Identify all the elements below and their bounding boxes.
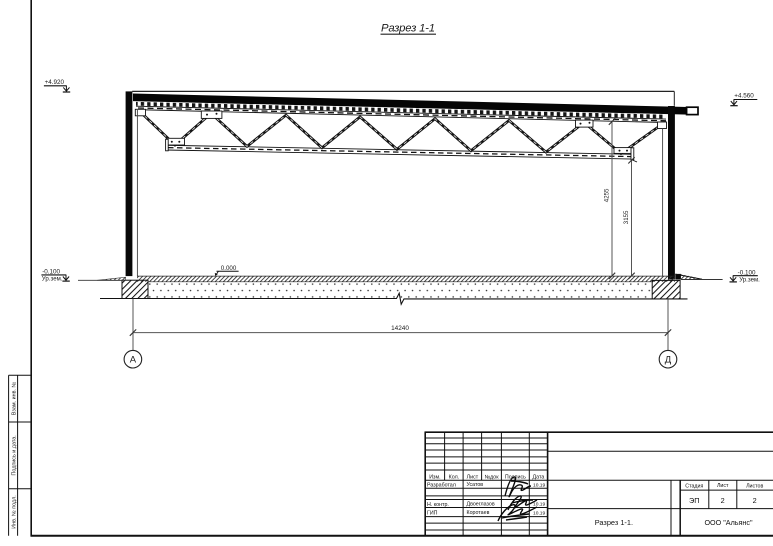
svg-text:Д: Д <box>665 355 672 366</box>
svg-text:А: А <box>130 355 137 366</box>
svg-text:10.19: 10.19 <box>533 482 546 488</box>
svg-text:Коротаев: Коротаев <box>467 510 490 516</box>
svg-text:Инв. № подл.: Инв. № подл. <box>11 495 17 529</box>
svg-text:Стадия: Стадия <box>685 483 703 489</box>
svg-text:Усатов: Усатов <box>467 482 484 488</box>
svg-text:Н. контр.: Н. контр. <box>427 502 449 508</box>
svg-text:Дата: Дата <box>533 474 545 480</box>
svg-text:ООО "Альянс": ООО "Альянс" <box>704 518 753 527</box>
svg-text:Разрез 1-1.: Разрез 1-1. <box>595 518 633 527</box>
svg-text:Кол.: Кол. <box>449 474 459 480</box>
svg-text:Изм.: Изм. <box>429 474 440 480</box>
svg-text:ГИП: ГИП <box>427 511 438 517</box>
svg-text:Ур.зем.: Ур.зем. <box>42 276 63 283</box>
svg-text:2: 2 <box>721 496 725 505</box>
svg-text:14240: 14240 <box>391 325 409 332</box>
svg-text:Двоеглазов: Двоеглазов <box>467 501 495 507</box>
svg-text:0.000: 0.000 <box>221 265 237 272</box>
svg-text:2: 2 <box>753 496 757 505</box>
svg-text:Лист: Лист <box>467 474 479 480</box>
svg-text:10.19: 10.19 <box>533 510 546 516</box>
svg-text:Разработал: Разработал <box>427 483 456 489</box>
svg-text:4255: 4255 <box>604 188 611 202</box>
svg-text:Разрез 1-1: Разрез 1-1 <box>381 23 435 35</box>
svg-text:Листов: Листов <box>746 483 763 489</box>
svg-text:ЭП: ЭП <box>689 496 700 505</box>
svg-text:Взам. инв. №: Взам. инв. № <box>11 382 17 416</box>
svg-text:+4.560: +4.560 <box>734 93 754 100</box>
svg-text:Ур.зем.: Ур.зем. <box>739 277 760 284</box>
svg-text:Подпись и дата.: Подпись и дата. <box>11 435 17 475</box>
svg-text:10.19: 10.19 <box>533 502 546 508</box>
svg-text:№док: №док <box>484 474 499 480</box>
svg-text:Лист: Лист <box>717 483 729 489</box>
svg-text:+4.920: +4.920 <box>45 79 65 86</box>
svg-text:3155: 3155 <box>623 210 630 224</box>
